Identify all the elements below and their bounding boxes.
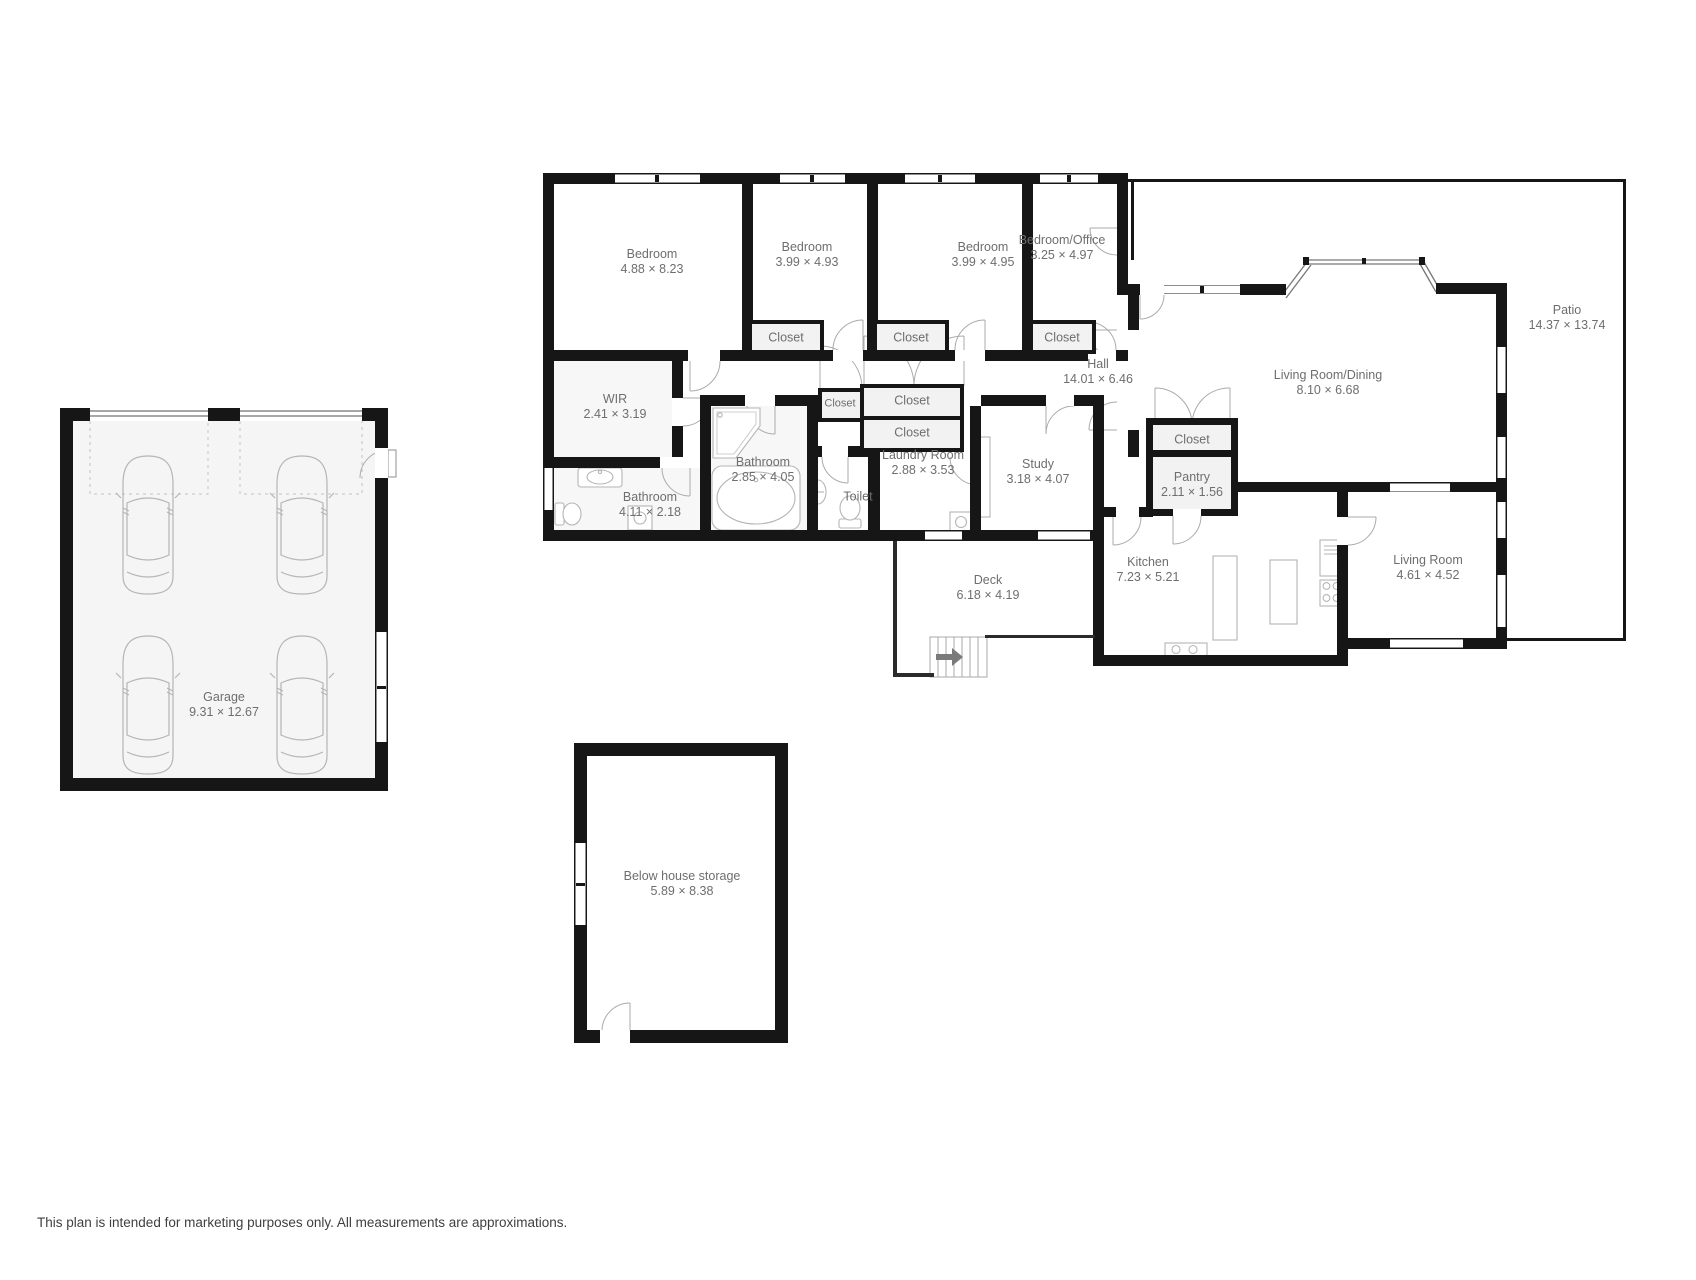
door-leaf — [388, 450, 396, 477]
wall — [981, 395, 1104, 406]
window-mullion — [1200, 286, 1204, 293]
wall — [807, 395, 818, 541]
room-label-closet: Closet — [893, 331, 928, 346]
kitchen-island — [1213, 556, 1297, 640]
wall — [1104, 507, 1116, 517]
room-label-garage: Garage9.31 × 12.67 — [189, 690, 259, 720]
room-label-patio: Patio14.37 × 13.74 — [1529, 303, 1606, 333]
room-label-laundry: Laundry Room2.88 × 3.53 — [882, 448, 964, 478]
room-label-bedroom3: Bedroom3.99 × 4.95 — [952, 240, 1015, 270]
wall — [1093, 655, 1348, 666]
wall — [60, 778, 388, 791]
window-mullion — [810, 175, 814, 182]
room-label-study: Study3.18 × 4.07 — [1007, 457, 1070, 487]
window-mullion — [1067, 175, 1071, 182]
wall — [60, 408, 73, 791]
wall — [1128, 430, 1139, 457]
window — [1497, 575, 1506, 627]
window-mullion — [576, 883, 585, 886]
wall — [970, 406, 981, 541]
deck-wall — [893, 673, 934, 677]
garage-floor — [73, 421, 375, 778]
door-opening — [822, 446, 848, 457]
door-opening — [1046, 395, 1074, 406]
room-label-wir: WIR2.41 × 3.19 — [584, 392, 647, 422]
room-label-deck: Deck6.18 × 4.19 — [957, 573, 1020, 603]
door-arc — [1113, 517, 1141, 545]
room-label-hall: Hall14.01 × 6.46 — [1063, 357, 1133, 387]
door-arc — [955, 320, 985, 350]
door-arc — [833, 320, 863, 350]
window — [1497, 502, 1506, 538]
room-label-bathroom-ensuite: Bathroom2.85 × 4.05 — [732, 455, 795, 485]
room-label-living-room: Living Room4.61 × 4.52 — [1393, 553, 1462, 583]
wall — [1117, 173, 1128, 293]
door-opening — [672, 398, 683, 426]
room-label-closet: Closet — [894, 426, 929, 441]
garage-side-door-opening — [375, 448, 388, 478]
wall — [775, 743, 788, 1043]
room-label-closet: Closet — [1174, 433, 1209, 448]
room-label-kitchen: Kitchen7.23 × 5.21 — [1117, 555, 1180, 585]
room-label-closet: Closet — [1044, 331, 1079, 346]
bay-window-icon — [1282, 257, 1440, 298]
door-arc — [822, 457, 848, 483]
window — [1390, 639, 1463, 648]
door-opening — [1173, 509, 1201, 516]
wall — [574, 743, 788, 756]
door-opening — [1337, 517, 1348, 545]
door-arc — [1173, 516, 1201, 544]
room-label-closet: Closet — [894, 394, 929, 409]
room-label-storage: Below house storage5.89 × 8.38 — [624, 869, 741, 899]
wall — [1240, 284, 1286, 295]
door-opening — [600, 1030, 630, 1043]
floor-plan: Garage9.31 × 12.67 Bedroom4.88 × 8.23 Be… — [0, 0, 1696, 1280]
room-label-bedroom-office: Bedroom/Office3.25 × 4.97 — [1019, 233, 1106, 263]
room-label-bathroom-main: Bathroom4.11 × 2.18 — [619, 490, 681, 520]
wall — [1117, 284, 1140, 295]
window-mullion — [377, 686, 386, 689]
window — [1390, 483, 1450, 492]
room-label-bedroom2: Bedroom3.99 × 4.93 — [776, 240, 839, 270]
door-opening — [955, 350, 985, 361]
sliding-door — [925, 531, 962, 540]
room-label-bedroom1: Bedroom4.88 × 8.23 — [621, 247, 684, 277]
window-mullion — [938, 175, 942, 182]
wall — [700, 395, 711, 541]
room-label-closet: Closet — [824, 397, 855, 412]
window — [1497, 347, 1506, 393]
wall — [208, 408, 240, 421]
door-opening — [745, 395, 775, 406]
room-label-pantry: Pantry2.11 × 1.56 — [1161, 470, 1223, 500]
window — [544, 465, 553, 510]
room-label-toilet: Toilet — [843, 490, 872, 505]
door-arc — [1140, 295, 1164, 319]
disclaimer-text: This plan is intended for marketing purp… — [37, 1215, 567, 1230]
door-arc — [1348, 517, 1376, 545]
door-opening — [833, 350, 863, 361]
stairs-icon — [930, 637, 987, 677]
stairs-direction-arrow — [936, 648, 963, 666]
window — [1497, 437, 1506, 478]
wall — [1230, 482, 1507, 492]
patio-wall — [1623, 179, 1626, 641]
patio-wall — [1128, 179, 1626, 182]
deck-wall — [893, 541, 897, 677]
deck-wall — [985, 635, 1095, 638]
patio-wall — [1507, 638, 1626, 641]
door-arc — [602, 1003, 630, 1031]
door-opening — [660, 457, 688, 468]
window-mullion — [655, 175, 659, 182]
entry-screen-wall — [1131, 182, 1134, 260]
room-label-closet: Closet — [768, 331, 803, 346]
wall — [543, 530, 1104, 541]
room-label-living-dining: Living Room/Dining8.10 × 6.68 — [1274, 368, 1382, 398]
door-arc — [690, 361, 720, 391]
door-opening — [688, 350, 720, 361]
door-arc — [1046, 406, 1074, 434]
sliding-door — [1038, 531, 1090, 540]
